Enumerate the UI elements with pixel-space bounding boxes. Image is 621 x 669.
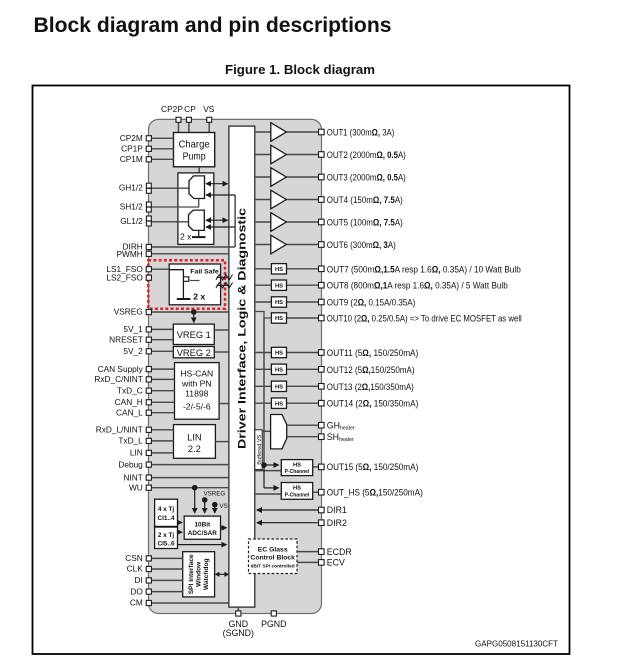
svg-text:VS: VS xyxy=(203,104,215,114)
svg-text:RxD_C/NINT: RxD_C/NINT xyxy=(94,374,142,384)
svg-text:2 x: 2 x xyxy=(193,291,205,301)
svg-text:CAN Supply: CAN Supply xyxy=(98,364,144,374)
svg-text:Debug: Debug xyxy=(118,459,143,469)
svg-text:CI1..4: CI1..4 xyxy=(157,515,174,522)
svg-text:P-Channel: P-Channel xyxy=(285,469,310,475)
svg-text:DIR2: DIR2 xyxy=(327,518,347,528)
svg-text:HS: HS xyxy=(275,316,283,322)
svg-text:HS: HS xyxy=(293,462,301,468)
svg-text:TxD_C: TxD_C xyxy=(117,385,143,395)
svg-text:TxD_L: TxD_L xyxy=(118,436,143,446)
svg-text:DI: DI xyxy=(134,575,142,585)
svg-text:Figure 1. Block diagram: Figure 1. Block diagram xyxy=(225,62,375,77)
svg-text:OUT2 (2000mΩ, 0.5A): OUT2 (2000mΩ, 0.5A) xyxy=(327,149,406,160)
svg-text:VSREG: VSREG xyxy=(114,307,143,317)
svg-text:2.2: 2.2 xyxy=(188,444,201,454)
svg-text:OUT10 (2Ω, 0.25/0.5A) => To dr: OUT10 (2Ω, 0.25/0.5A) => To drive EC MOS… xyxy=(327,313,522,324)
svg-text:P-Channel: P-Channel xyxy=(285,492,310,498)
svg-text:2 x Tj: 2 x Tj xyxy=(158,532,175,539)
svg-text:OUT13 (2Ω,150/350mA): OUT13 (2Ω,150/350mA) xyxy=(327,381,414,392)
svg-text:11898: 11898 xyxy=(185,389,208,399)
svg-text:OUT15 (5Ω, 150/250mA): OUT15 (5Ω, 150/250mA) xyxy=(327,461,419,472)
svg-text:CP: CP xyxy=(184,104,196,114)
svg-text:5V_2: 5V_2 xyxy=(123,346,143,356)
svg-text:Block diagram and pin descript: Block diagram and pin descriptions xyxy=(34,13,392,37)
svg-text:PGND: PGND xyxy=(261,619,286,629)
svg-text:OUT_HS (5Ω,150/250mA): OUT_HS (5Ω,150/250mA) xyxy=(327,486,423,497)
svg-text:CI5..6: CI5..6 xyxy=(157,541,174,548)
svg-text:HS: HS xyxy=(293,486,301,492)
svg-text:CP1M: CP1M xyxy=(120,154,143,164)
svg-text:CAN_H: CAN_H xyxy=(115,397,143,407)
svg-text:2 x: 2 x xyxy=(180,231,192,241)
svg-text:CP1P: CP1P xyxy=(121,144,143,154)
svg-text:VSREG: VSREG xyxy=(204,491,226,498)
svg-text:OUT4 (150mΩ, 7.5A): OUT4 (150mΩ, 7.5A) xyxy=(327,194,403,205)
svg-text:DO: DO xyxy=(130,586,143,596)
svg-text:5V_1: 5V_1 xyxy=(123,324,143,334)
svg-text:GAPG0508151130CFT: GAPG0508151130CFT xyxy=(475,639,558,649)
svg-text:10Bit: 10Bit xyxy=(194,521,210,528)
svg-text:with PN: with PN xyxy=(181,379,212,389)
svg-text:Buffered VS: Buffered VS xyxy=(257,434,263,464)
svg-text:Charge: Charge xyxy=(179,139,210,151)
svg-text:NRESET: NRESET xyxy=(109,334,143,344)
svg-text:DIR1: DIR1 xyxy=(327,505,347,515)
svg-text:SH1/2: SH1/2 xyxy=(120,202,143,212)
svg-text:OUT5 (100mΩ, 7.5A): OUT5 (100mΩ, 7.5A) xyxy=(327,217,403,228)
svg-text:WU: WU xyxy=(129,482,143,492)
svg-text:OUT8 (800mΩ,1A resp 1.6Ω, 0.35: OUT8 (800mΩ,1A resp 1.6Ω, 0.35A) / 5 Wat… xyxy=(327,280,508,291)
svg-text:4 x Tj: 4 x Tj xyxy=(158,506,175,513)
svg-text:HS: HS xyxy=(275,368,283,374)
svg-text:CP2M: CP2M xyxy=(120,133,143,143)
svg-text:OUT1 (300mΩ, 3A): OUT1 (300mΩ, 3A) xyxy=(327,127,395,138)
svg-text:OUT9 (2Ω, 0.15A/0.35A): OUT9 (2Ω, 0.15A/0.35A) xyxy=(327,297,416,308)
svg-text:(SGND): (SGND) xyxy=(223,628,254,638)
svg-text:ECDR: ECDR xyxy=(327,547,352,557)
svg-text:CSN: CSN xyxy=(125,553,143,563)
svg-text:LS2_FSO: LS2_FSO xyxy=(106,272,143,282)
svg-text:LIN: LIN xyxy=(187,433,201,443)
svg-text:PWMH: PWMH xyxy=(117,249,143,259)
svg-text:LIN: LIN xyxy=(130,448,143,458)
svg-text:OUT7 (500mΩ,1.5A resp 1.6Ω, 0.: OUT7 (500mΩ,1.5A resp 1.6Ω, 0.35A) / 10 … xyxy=(327,263,521,274)
svg-text:CM: CM xyxy=(130,598,143,608)
svg-text:HS: HS xyxy=(275,351,283,357)
svg-text:Fail Safe: Fail Safe xyxy=(190,268,219,275)
svg-text:HS: HS xyxy=(275,267,283,273)
svg-text:OUT6 (300mΩ, 3A): OUT6 (300mΩ, 3A) xyxy=(327,239,396,250)
svg-text:VREG 1: VREG 1 xyxy=(177,330,211,340)
svg-text:HS: HS xyxy=(275,283,283,289)
svg-text:CAN_L: CAN_L xyxy=(116,407,143,417)
svg-text:GH1/2: GH1/2 xyxy=(119,183,143,193)
svg-text:RxD_L/NINT: RxD_L/NINT xyxy=(96,425,143,435)
svg-text:VS: VS xyxy=(220,503,228,510)
svg-text:ADC/SAR: ADC/SAR xyxy=(188,530,217,537)
svg-text:NINT: NINT xyxy=(123,472,142,482)
svg-text:HS: HS xyxy=(275,385,283,391)
svg-text:OUT11 (5Ω, 150/250mA): OUT11 (5Ω, 150/250mA) xyxy=(327,347,419,358)
svg-text:Control Block: Control Block xyxy=(250,555,295,562)
svg-text:Pump: Pump xyxy=(183,151,206,163)
svg-text:Driver Interface, Logic & Diag: Driver Interface, Logic & Diagnostic xyxy=(237,208,249,449)
svg-text:HS-CAN: HS-CAN xyxy=(180,369,213,379)
svg-text:-2/-5/-6: -2/-5/-6 xyxy=(183,402,211,412)
svg-text:HS: HS xyxy=(275,401,283,407)
svg-text:OUT12 (5Ω,150/250mA): OUT12 (5Ω,150/250mA) xyxy=(327,364,415,375)
svg-text:OUT3 (2000mΩ, 0.5A): OUT3 (2000mΩ, 0.5A) xyxy=(327,172,406,183)
svg-text:6BIT SPI controlled: 6BIT SPI controlled xyxy=(251,564,295,570)
svg-text:GL1/2: GL1/2 xyxy=(120,216,143,226)
svg-text:OUT14 (2Ω, 150/350mA): OUT14 (2Ω, 150/350mA) xyxy=(327,398,419,409)
svg-text:CLK: CLK xyxy=(127,564,144,574)
svg-text:CP2P: CP2P xyxy=(161,104,183,114)
svg-text:ECV: ECV xyxy=(327,558,345,568)
svg-text:EC Glass: EC Glass xyxy=(258,547,288,554)
svg-text:HS: HS xyxy=(275,300,283,306)
svg-text:VREG 2: VREG 2 xyxy=(177,348,211,358)
